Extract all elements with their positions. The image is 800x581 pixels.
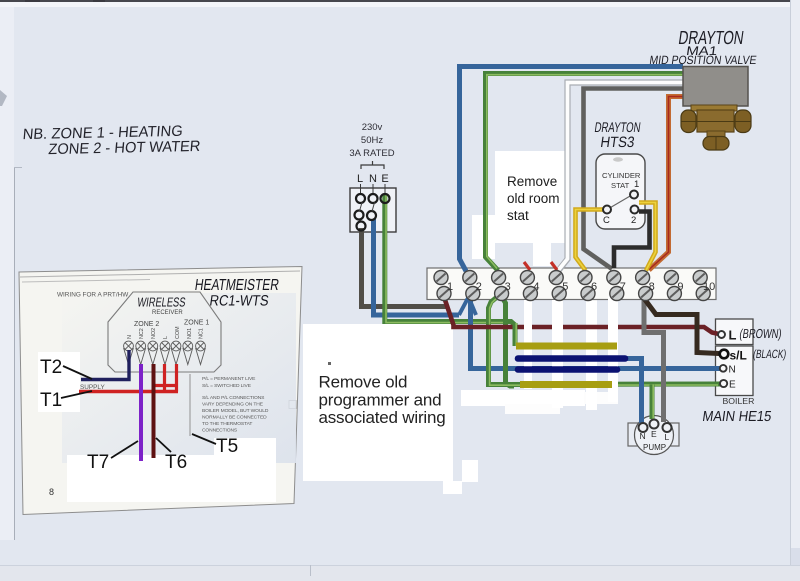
svg-text:programmer and: programmer and — [319, 391, 442, 410]
svg-text:N: N — [729, 365, 736, 376]
svg-text:Remove: Remove — [507, 174, 557, 189]
svg-text:TO THE THERMOSTAT: TO THE THERMOSTAT — [202, 421, 252, 427]
svg-text:NO1: NO1 — [187, 328, 193, 339]
svg-text:CONNECTIONS: CONNECTIONS — [202, 428, 238, 434]
svg-text:associated wiring: associated wiring — [319, 408, 446, 427]
svg-text:s/L: s/L — [730, 349, 747, 363]
svg-text:RC1-WTS: RC1-WTS — [209, 293, 270, 310]
svg-text:BOILER: BOILER — [723, 396, 755, 406]
svg-text:L: L — [163, 336, 169, 339]
svg-text:(BROWN): (BROWN) — [739, 326, 783, 341]
svg-text:ZONE 2 - HOT WATER: ZONE 2 - HOT WATER — [48, 138, 202, 158]
svg-text:RECEIVER: RECEIVER — [152, 310, 183, 316]
svg-text:DRAYTON: DRAYTON — [594, 119, 642, 135]
svg-text:BOILER MODEL, BUT WOULD: BOILER MODEL, BUT WOULD — [202, 408, 269, 414]
svg-text:1: 1 — [634, 179, 639, 190]
svg-text:N: N — [640, 431, 646, 441]
svg-text:E: E — [651, 429, 657, 439]
svg-text:MAIN HE15: MAIN HE15 — [701, 409, 772, 425]
svg-text:HEATMEISTER: HEATMEISTER — [194, 276, 281, 294]
svg-text:(BLACK): (BLACK) — [752, 347, 787, 361]
svg-text:L: L — [357, 173, 363, 185]
svg-text:5: 5 — [562, 281, 568, 293]
svg-text:10: 10 — [703, 281, 715, 293]
svg-text:STAT: STAT — [611, 181, 630, 190]
svg-text:N: N — [369, 173, 377, 185]
svg-text:E: E — [729, 380, 736, 391]
svg-text:C: C — [603, 215, 610, 226]
svg-text:1: 1 — [447, 281, 453, 293]
svg-text:Remove old: Remove old — [319, 373, 408, 392]
svg-text:T1: T1 — [40, 390, 62, 411]
svg-text:NC1: NC1 — [199, 328, 205, 339]
svg-text:6: 6 — [591, 281, 597, 293]
svg-text:2: 2 — [631, 215, 636, 226]
svg-text:3: 3 — [505, 281, 511, 293]
svg-text:4: 4 — [533, 281, 539, 293]
svg-text:50Hz: 50Hz — [361, 135, 383, 146]
svg-text:T5: T5 — [216, 436, 238, 457]
svg-text:COM: COM — [175, 326, 181, 339]
svg-text:8: 8 — [49, 487, 54, 497]
svg-text:T2: T2 — [40, 357, 62, 378]
svg-text:NO2: NO2 — [151, 328, 157, 339]
svg-text:N: N — [127, 335, 133, 339]
svg-text:VARY DEPENDING ON THE: VARY DEPENDING ON THE — [202, 402, 264, 408]
svg-text:NC2: NC2 — [139, 328, 145, 339]
svg-text:3A RATED: 3A RATED — [349, 148, 394, 159]
svg-text:NORMALLY BE CONNECTED: NORMALLY BE CONNECTED — [202, 415, 267, 421]
svg-text:T6: T6 — [165, 452, 187, 473]
svg-text:ZONE 2: ZONE 2 — [134, 321, 159, 328]
svg-text:WIRELESS: WIRELESS — [137, 295, 187, 310]
svg-text:L: L — [665, 432, 670, 442]
svg-text:S/L AND P/L CONNECTIONS: S/L AND P/L CONNECTIONS — [202, 395, 265, 401]
svg-text:HTS3: HTS3 — [599, 134, 635, 151]
svg-text:ZONE 1: ZONE 1 — [184, 320, 209, 327]
svg-text:E: E — [381, 173, 388, 185]
svg-text:old room: old room — [507, 191, 560, 206]
svg-text:T7: T7 — [87, 452, 109, 473]
svg-text:L: L — [729, 328, 737, 343]
svg-text:7: 7 — [620, 281, 626, 293]
svg-text:PUMP: PUMP — [643, 443, 666, 452]
svg-text:9: 9 — [677, 281, 683, 293]
svg-text:S/L = SWITCHED LIVE: S/L = SWITCHED LIVE — [202, 383, 252, 389]
svg-text:230v: 230v — [362, 122, 383, 133]
svg-text:stat: stat — [507, 208, 529, 223]
svg-text:8: 8 — [649, 281, 655, 293]
svg-text:P/L = PERMANENT LIVE: P/L = PERMANENT LIVE — [202, 376, 256, 382]
svg-text:2: 2 — [476, 281, 482, 293]
svg-text:SUPPLY: SUPPLY — [80, 384, 105, 391]
svg-text:MID POSITION VALVE: MID POSITION VALVE — [649, 53, 758, 67]
svg-text:WIRING FOR A PRT/HW: WIRING FOR A PRT/HW — [57, 292, 129, 299]
